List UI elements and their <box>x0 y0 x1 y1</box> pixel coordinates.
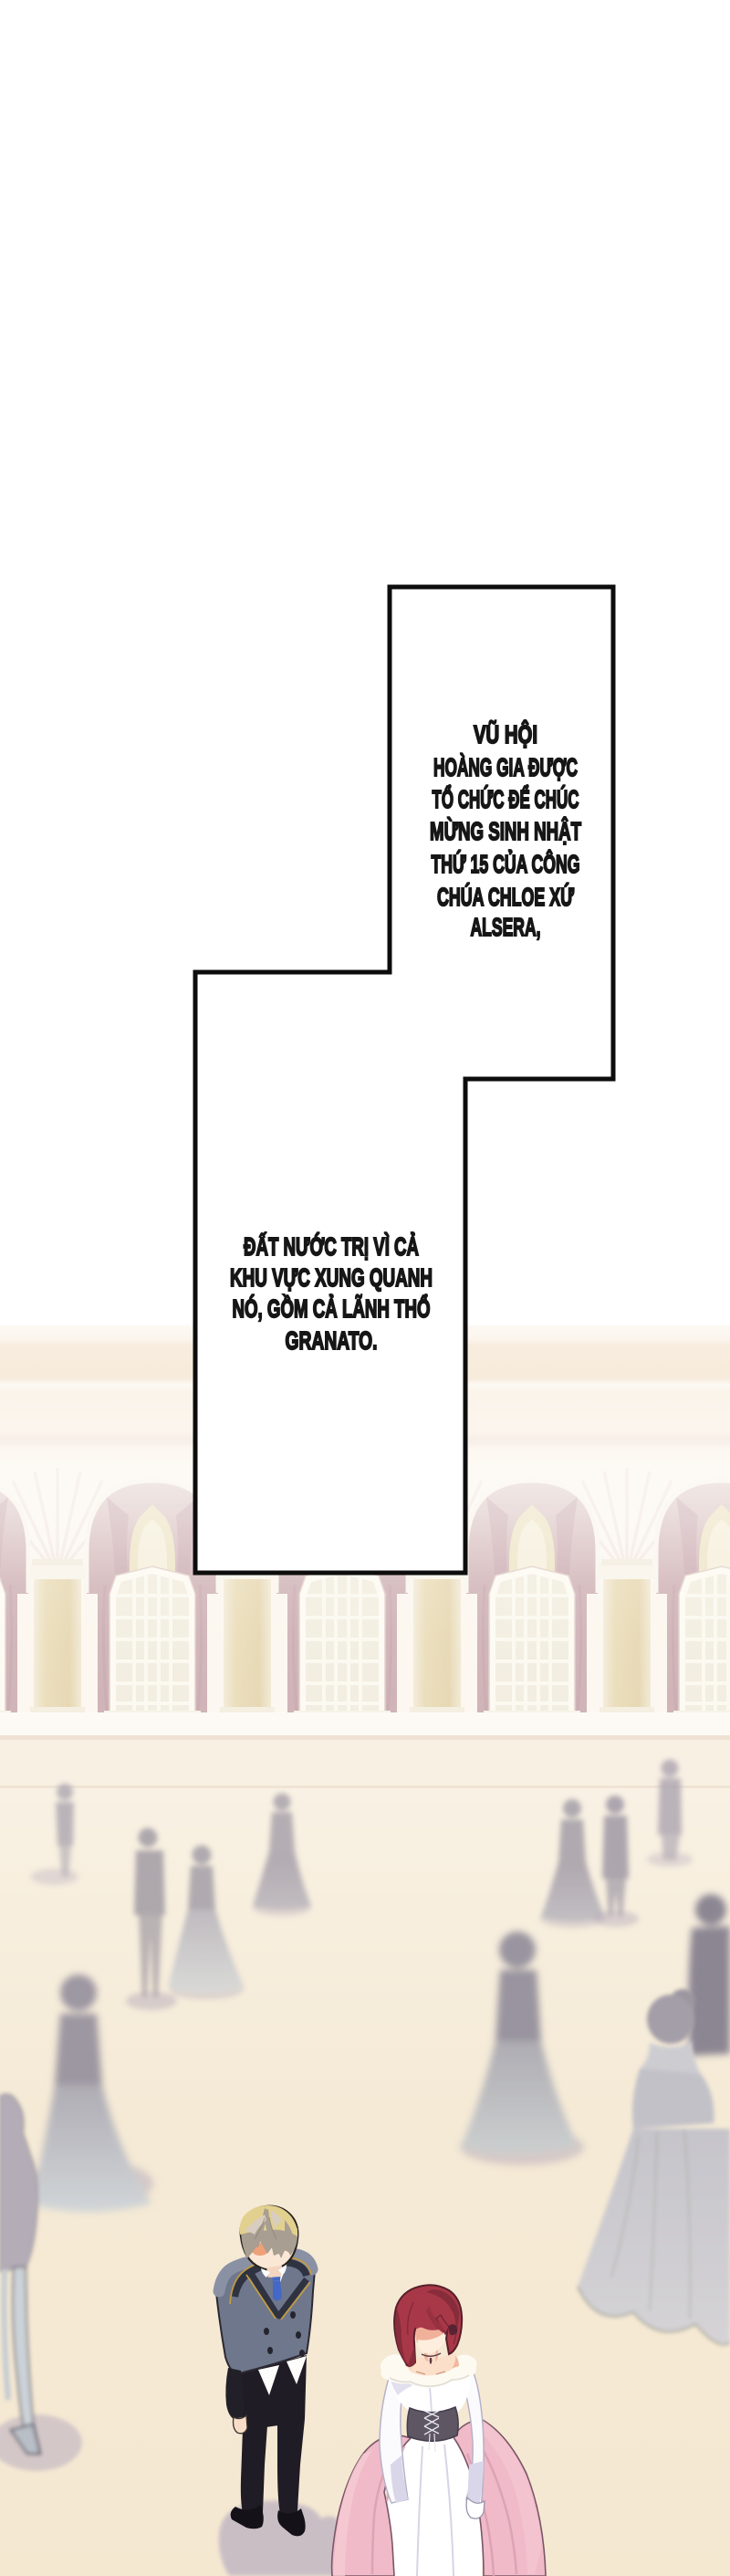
svg-text:CHÚA CHLOE XỨ: CHÚA CHLOE XỨ <box>437 883 574 911</box>
svg-text:NÓ, GỒM CẢ LÃNH THỔ: NÓ, GỒM CẢ LÃNH THỔ <box>233 1293 431 1323</box>
svg-text:MỪNG SINH NHẬT: MỪNG SINH NHẬT <box>430 817 581 845</box>
svg-text:KHU VỰC XUNG QUANH: KHU VỰC XUNG QUANH <box>230 1263 433 1292</box>
svg-text:GRANATO.: GRANATO. <box>286 1326 378 1355</box>
svg-text:VŨ HỘI: VŨ HỘI <box>474 719 537 749</box>
svg-text:ALSERA,: ALSERA, <box>471 913 541 941</box>
svg-text:TỔ CHỨC ĐỂ CHÚC: TỔ CHỨC ĐỂ CHÚC <box>433 785 579 813</box>
svg-text:THỨ 15 CỦA CÔNG: THỨ 15 CỦA CÔNG <box>432 849 580 878</box>
svg-text:HOÀNG GIA ĐƯỢC: HOÀNG GIA ĐƯỢC <box>433 753 578 781</box>
svg-text:ĐẤT NƯỚC TRỊ VÌ CẢ: ĐẤT NƯỚC TRỊ VÌ CẢ <box>244 1231 419 1261</box>
